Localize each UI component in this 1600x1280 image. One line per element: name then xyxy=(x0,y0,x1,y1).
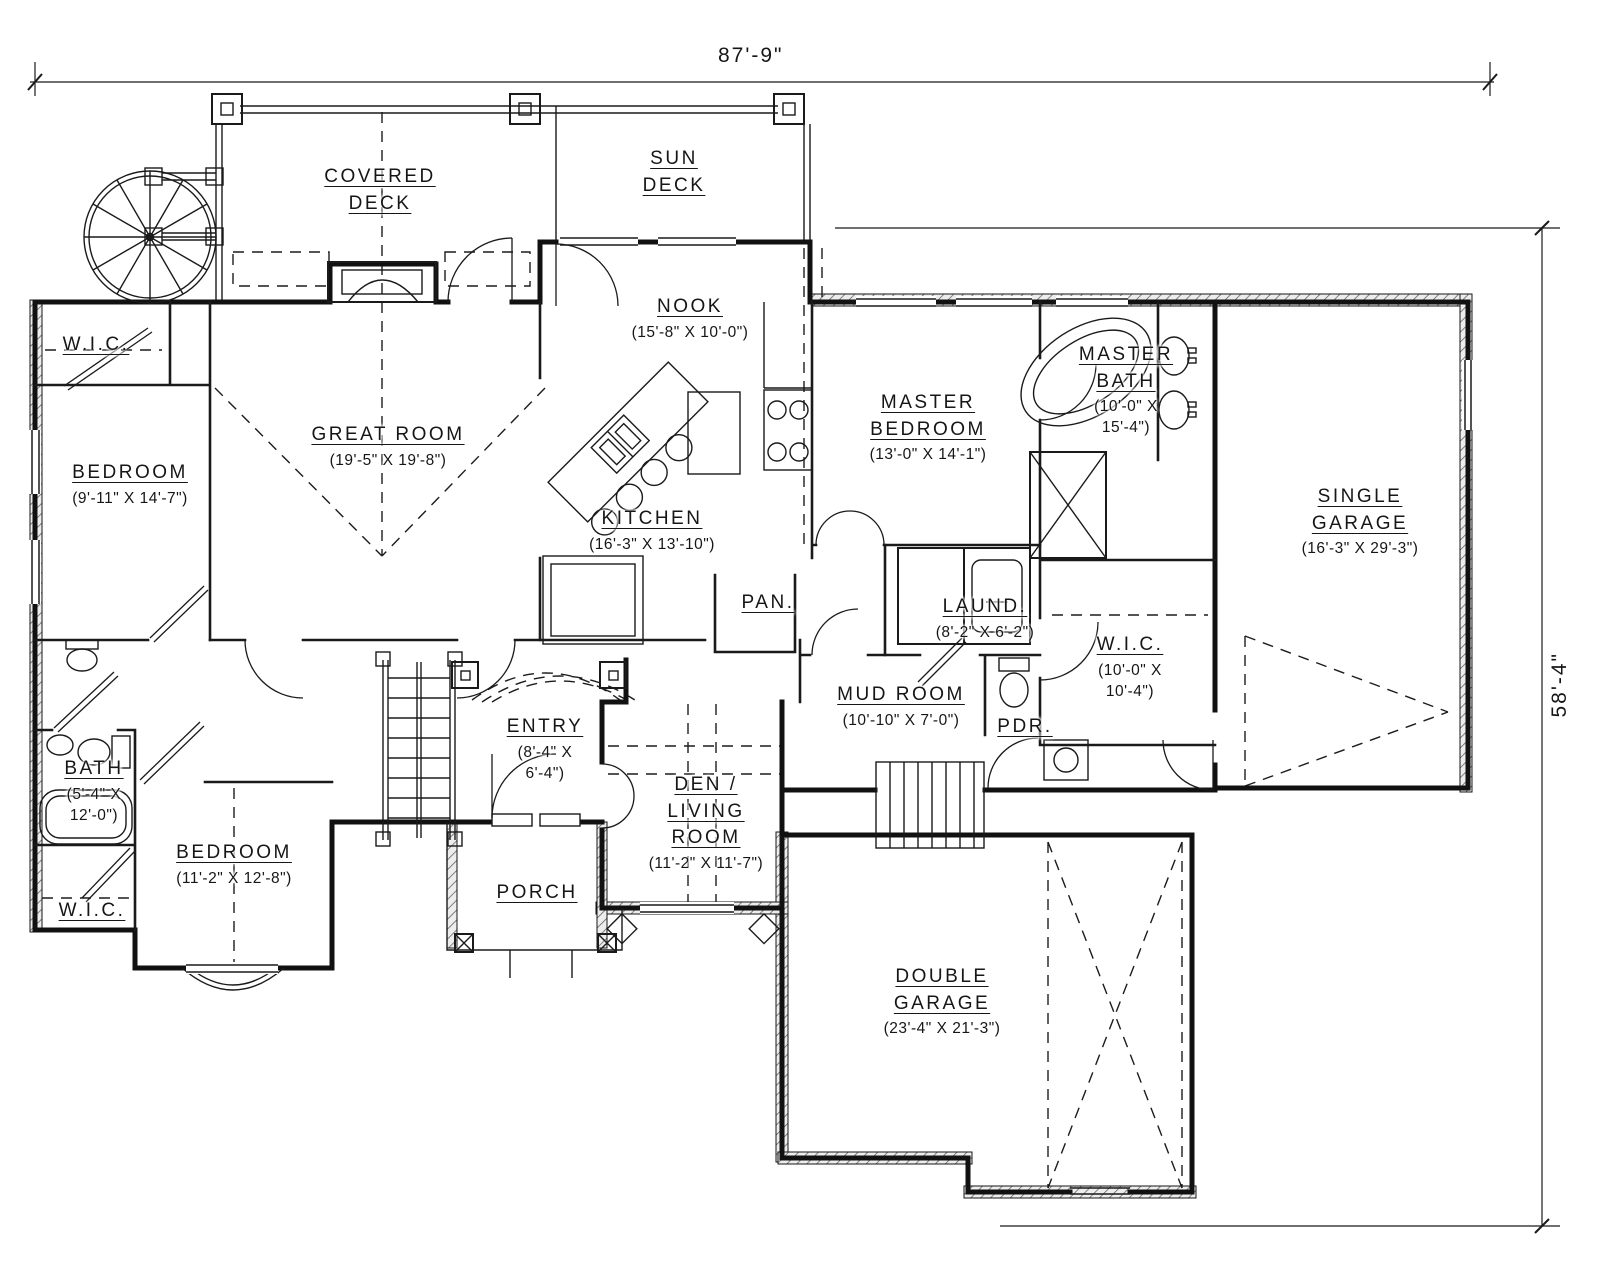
toilet-tank xyxy=(999,658,1029,671)
room-label-single-garage: SINGLE GARAGE (16'-3" X 29'-3") xyxy=(1302,484,1419,560)
room-label-wic-master: W.I.C. (10'-0" X 10'-4") xyxy=(1097,632,1164,702)
room-label-bath: BATH (5'-4" X 12'-0") xyxy=(64,756,123,826)
room-label-mud-room: MUD ROOM (10'-10" X 7'-0") xyxy=(837,682,965,732)
sink xyxy=(1054,748,1078,772)
room-label-great-room: GREAT ROOM (19'-5" X 19'-8") xyxy=(311,422,464,472)
spiral-staircase xyxy=(84,171,216,303)
room-label-sun-deck: SUN DECK xyxy=(643,146,706,199)
room-label-bedroom-left: BEDROOM (9'-11" X 14'-7") xyxy=(72,460,188,510)
floor-plan-page: 87'-9" 58'-4" COVERED DECK SUN DECK NOOK… xyxy=(0,0,1600,1280)
room-label-wic-lower: W.I.C. xyxy=(59,898,126,925)
room-label-entry: ENTRY (8'-4" X 6'-4") xyxy=(507,714,584,784)
front-door xyxy=(492,814,532,826)
toilet xyxy=(1000,673,1028,707)
room-label-porch: PORCH xyxy=(496,880,577,907)
overall-height-dimension: 58'-4" xyxy=(1548,652,1572,718)
room-label-covered-deck: COVERED DECK xyxy=(324,164,435,217)
room-label-double-garage: DOUBLE GARAGE (23'-4" X 21'-3") xyxy=(884,964,1001,1040)
room-label-wic-upper: W.I.C. xyxy=(63,332,130,359)
room-label-bedroom-lower: BEDROOM (11'-2" X 12'-8") xyxy=(176,840,292,890)
floor-plan-drawing xyxy=(0,0,1600,1280)
room-label-laundry: LAUND. (8'-2" X 6'-2") xyxy=(936,594,1035,644)
room-label-powder: PDR. xyxy=(997,714,1052,741)
main-staircase xyxy=(376,652,462,846)
room-label-kitchen: KITCHEN (16'-3" X 13'-10") xyxy=(589,506,715,556)
shower xyxy=(1030,452,1106,558)
room-label-nook: NOOK (15'-8" X 10'-0") xyxy=(632,294,749,344)
room-label-master-bedroom: MASTER BEDROOM (13'-0" X 14'-1") xyxy=(870,390,987,466)
exterior-walls xyxy=(35,242,1468,1192)
sink xyxy=(67,649,97,671)
windows xyxy=(29,235,1474,1194)
dashed-guides xyxy=(42,112,1448,1188)
sink xyxy=(47,735,73,755)
room-label-master-bath: MASTER BATH (10'-0" X 15'-4") xyxy=(1079,342,1173,439)
overall-width-dimension: 87'-9" xyxy=(718,44,784,68)
room-label-pantry: PAN. xyxy=(742,590,795,617)
room-label-den: DEN / LIVING ROOM (11'-2" X 11'-7") xyxy=(649,772,763,875)
